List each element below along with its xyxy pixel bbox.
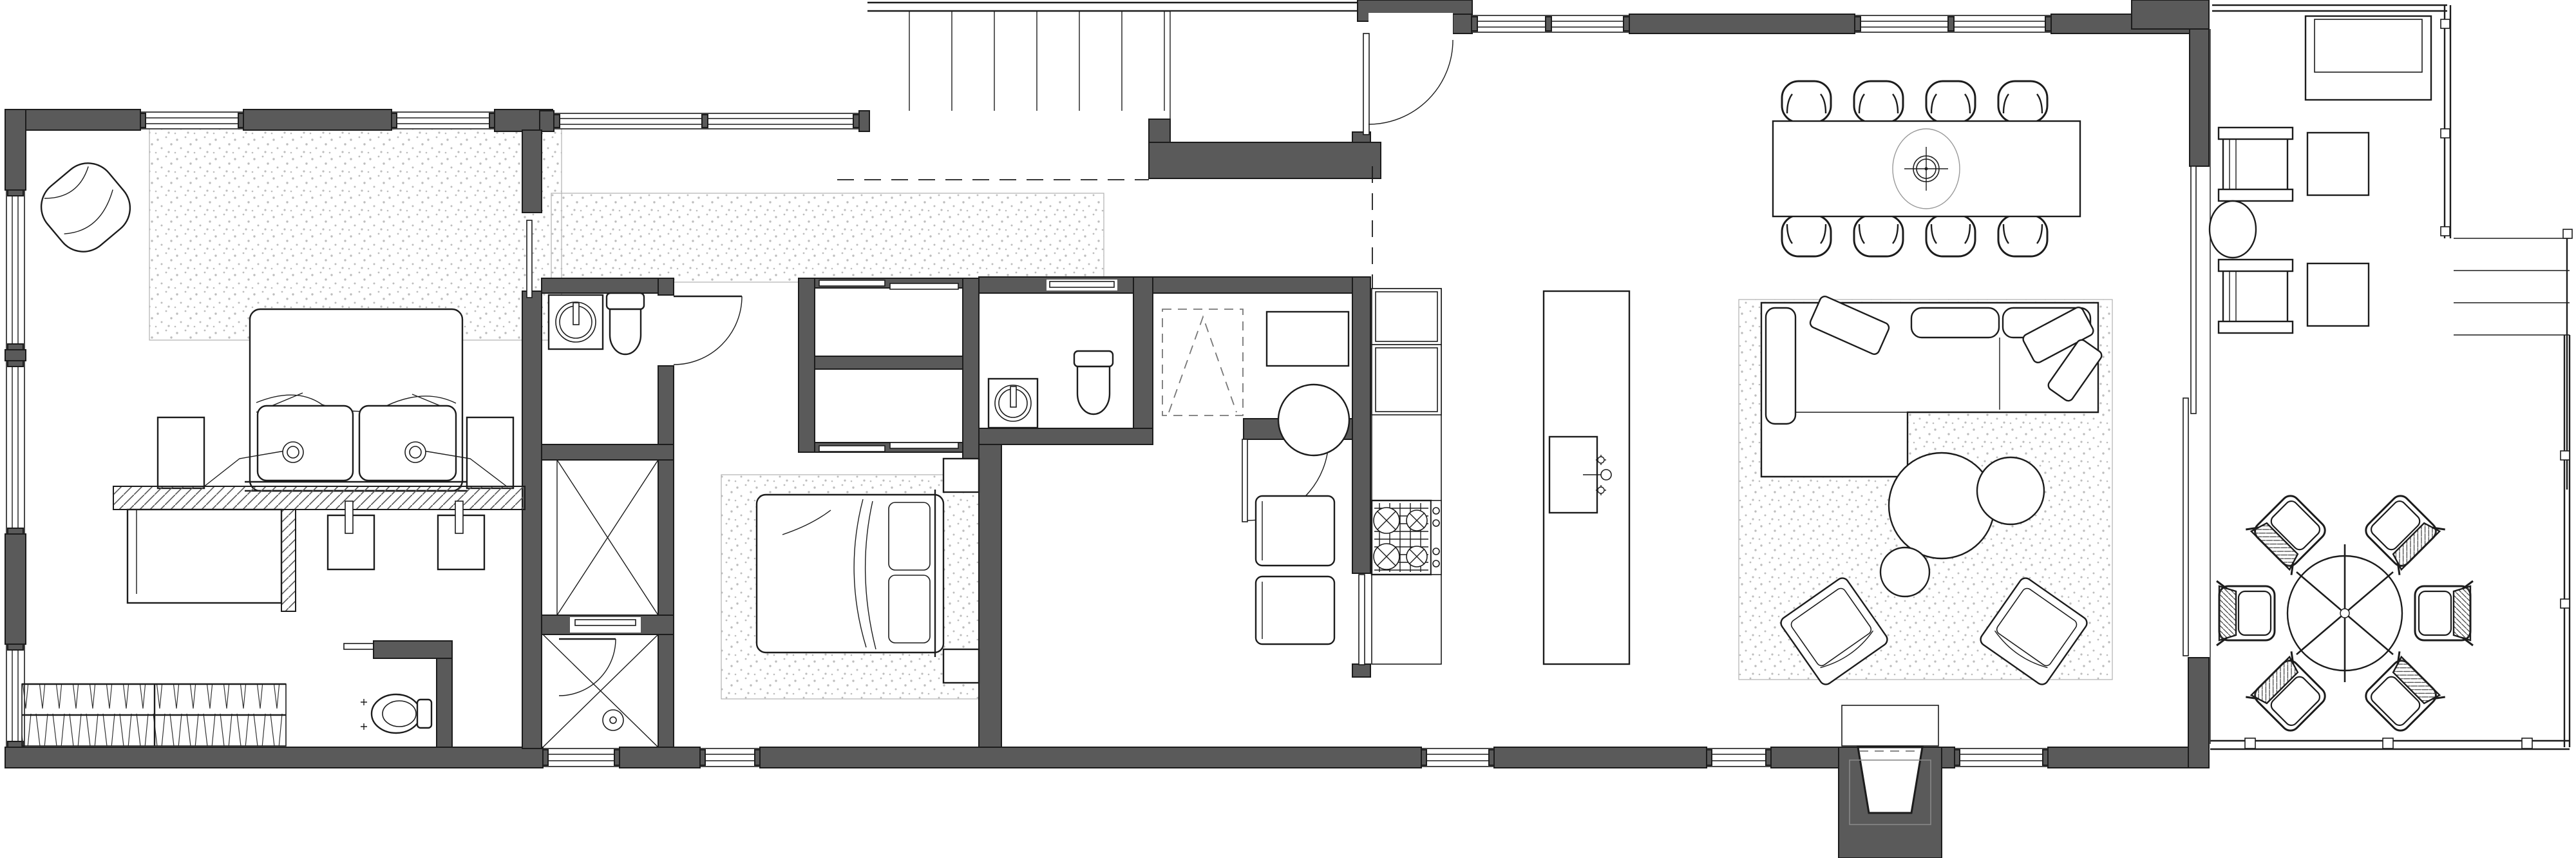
pillow: [889, 502, 930, 570]
dining-area: [1773, 81, 2080, 256]
coffee-table-small: [1880, 548, 1929, 596]
outdoor-chair: [2217, 581, 2275, 645]
linen-closet: [557, 460, 658, 615]
shower-room: [543, 634, 658, 747]
deck-north-edge: [2212, 5, 2447, 11]
window: [1707, 748, 1771, 767]
dining-chair: [1926, 81, 1975, 122]
bathroom-2: [989, 351, 1113, 428]
floor-plan-page: [0, 0, 2576, 858]
entry-mat: [1842, 705, 1938, 746]
window-band-hall: [554, 113, 859, 129]
pillow: [889, 575, 930, 643]
outdoor-side-table: [2307, 263, 2369, 326]
window: [1955, 748, 2048, 767]
gas-cooktop: [1372, 500, 1441, 575]
bathroom-1: [549, 293, 644, 354]
south-porch: [1839, 705, 1942, 858]
rail-post: [2245, 738, 2255, 748]
dining-chair: [1926, 215, 1975, 256]
bed2: [757, 490, 943, 657]
closet-slider: [890, 283, 958, 289]
wardrobe: [22, 684, 286, 746]
faucet: [345, 501, 353, 533]
back-cushion: [1911, 308, 1999, 338]
faucet: [455, 501, 463, 533]
pillow: [359, 406, 456, 481]
coffee-table-medium: [1977, 457, 2044, 524]
living-sliding-glass-doors: [2183, 166, 2196, 656]
rail-post: [2383, 738, 2393, 748]
window: [543, 748, 620, 767]
nightstand: [943, 649, 979, 683]
entry-landing: [1170, 12, 1358, 142]
wc-pocket-door: [344, 643, 374, 649]
dining-chair: [1998, 81, 2047, 122]
exterior-stair-treads: [909, 11, 1164, 111]
floor-plan-drawing: [0, 0, 2576, 858]
window: [392, 112, 495, 129]
faucet: [573, 303, 579, 325]
rail-post: [2561, 599, 2570, 608]
outdoor-dining-set: [2217, 488, 2473, 738]
kitchen-island: [1544, 291, 1629, 664]
rail-post: [2441, 19, 2450, 28]
closet-slider: [819, 280, 885, 286]
faucet: [1010, 386, 1016, 407]
outdoor-lounge-chair: [2219, 260, 2293, 333]
rail-post: [2441, 227, 2450, 236]
lounge-chair: [30, 152, 141, 263]
north-entry-deck: [867, 3, 1358, 142]
nightstand: [467, 417, 513, 488]
attic-hatch: [1162, 309, 1243, 415]
chaise-back: [1766, 308, 1795, 424]
closet-slider: [819, 446, 885, 452]
rail-post: [2441, 129, 2450, 138]
master-wc: [361, 641, 452, 747]
closet-slider: [890, 443, 958, 448]
toilet: [607, 293, 644, 354]
basin: [328, 501, 374, 569]
desk: [128, 510, 281, 603]
coffee-table-large: [1889, 453, 1994, 558]
front-door: [1363, 13, 1453, 135]
island-faucet: [1601, 470, 1611, 480]
nightstand: [943, 459, 979, 492]
outdoor-chair: [2415, 581, 2473, 645]
rail-post: [2561, 451, 2570, 460]
stool: [1278, 385, 1349, 455]
dining-chair: [1998, 215, 2047, 256]
hall-runner-rug: [551, 193, 1104, 282]
window: [1472, 15, 1629, 32]
deck-edge: [867, 3, 1358, 11]
nightstand: [158, 417, 204, 488]
linen-door-leaf: [575, 620, 636, 625]
chair: [1256, 577, 1334, 644]
dining-chair: [1854, 81, 1903, 122]
flex-room: [1162, 309, 1349, 644]
pillow: [258, 406, 353, 481]
deck-stairs-east: [2454, 229, 2572, 490]
rail-post: [2522, 738, 2532, 748]
basin: [438, 501, 484, 569]
master-sliding-door: [527, 220, 532, 298]
bath1-door: [674, 296, 742, 365]
east-deck: [2210, 5, 2572, 749]
kitchen-passage-door: [1359, 575, 1365, 665]
toilet: [1074, 351, 1113, 414]
dining-chair: [1854, 215, 1903, 256]
kitchen: [1372, 289, 1629, 664]
window: [6, 190, 24, 350]
master-rug: [149, 126, 562, 340]
chair: [1256, 496, 1334, 566]
toilet: [361, 694, 431, 733]
shower-door: [559, 639, 616, 696]
counter-support: [281, 510, 296, 611]
dining-chair: [1782, 215, 1831, 256]
window: [1421, 748, 1494, 767]
outdoor-lounge-chair: [2219, 128, 2293, 201]
bath2-pocket-door: [1050, 281, 1114, 287]
window: [140, 112, 243, 129]
window: [1855, 15, 2051, 32]
outdoor-oval-table: [2210, 201, 2256, 258]
outdoor-daybed: [2306, 16, 2431, 100]
master-bed: [245, 309, 468, 491]
dining-chair: [1782, 81, 1831, 122]
outdoor-side-table: [2307, 133, 2369, 195]
window: [700, 748, 760, 767]
table: [1267, 312, 1349, 366]
window: [6, 361, 24, 534]
deck-east-rail-upper: [2445, 5, 2450, 238]
